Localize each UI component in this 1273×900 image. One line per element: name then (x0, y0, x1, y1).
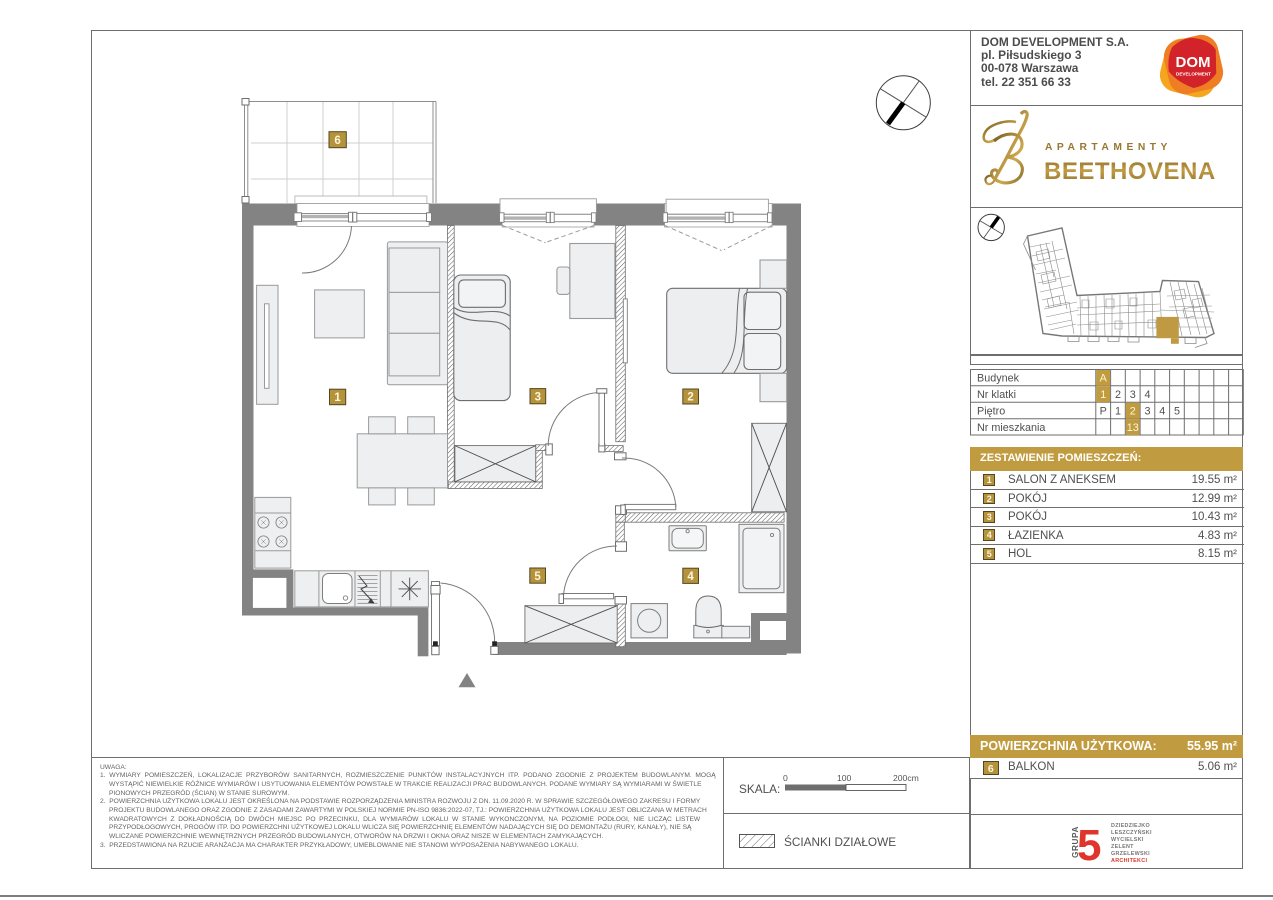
svg-text:2: 2 (1130, 406, 1136, 418)
svg-text:0: 0 (783, 773, 788, 783)
svg-text:DEVELOPMENT: DEVELOPMENT (1176, 72, 1211, 77)
svg-text:4: 4 (1159, 406, 1165, 418)
svg-text:LESZCZYŃSKI: LESZCZYŃSKI (1111, 828, 1152, 836)
svg-text:GRZELEWSKI: GRZELEWSKI (1111, 851, 1150, 857)
svg-text:1: 1 (1100, 389, 1106, 401)
svg-text:4: 4 (1144, 389, 1150, 401)
svg-text:DOM: DOM (1176, 54, 1211, 71)
svg-text:5: 5 (1077, 821, 1101, 865)
svg-text:1: 1 (1115, 406, 1121, 418)
svg-text:BEETHOVENA: BEETHOVENA (1044, 158, 1216, 185)
svg-text:Budynek: Budynek (977, 373, 1020, 385)
svg-text:200cm: 200cm (893, 773, 919, 783)
svg-text:13: 13 (1127, 422, 1139, 434)
svg-text:2: 2 (1115, 389, 1121, 401)
svg-text:APARTAMENTY: APARTAMENTY (1045, 142, 1172, 153)
svg-text:5: 5 (1174, 406, 1180, 418)
svg-text:Nr klatki: Nr klatki (977, 389, 1016, 401)
svg-text:P: P (1100, 406, 1107, 418)
svg-text:A: A (1100, 373, 1108, 385)
svg-text:Nr mieszkania: Nr mieszkania (977, 422, 1045, 434)
svg-text:ARCHITEKCI: ARCHITEKCI (1111, 858, 1147, 864)
svg-text:WYCIELSKI: WYCIELSKI (1111, 837, 1144, 843)
svg-text:3: 3 (1130, 389, 1136, 401)
svg-text:3: 3 (1144, 406, 1150, 418)
svg-text:100: 100 (837, 773, 852, 783)
svg-text:Piętro: Piętro (977, 406, 1005, 418)
svg-text:ZELENT: ZELENT (1111, 844, 1134, 850)
svg-text:DZIEDZIEJKO: DZIEDZIEJKO (1111, 823, 1150, 829)
